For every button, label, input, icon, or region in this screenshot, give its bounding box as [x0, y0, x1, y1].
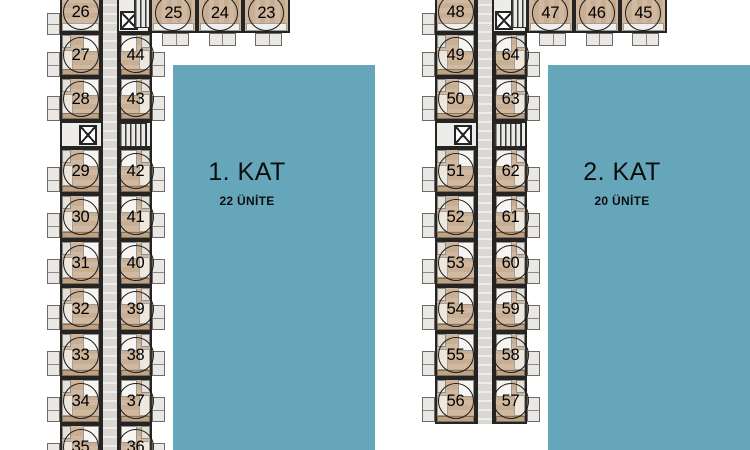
floor-plan-canvas: 1. KAT 22 ÜNİTE 2. KAT 20 ÜNİTE 26252423… — [0, 0, 750, 450]
unit-number-badge: 59 — [493, 291, 529, 327]
unit-number-badge: 58 — [493, 337, 529, 373]
balcony — [422, 167, 435, 192]
unit-number-badge: 51 — [438, 153, 474, 189]
unit-number-badge: 63 — [493, 81, 529, 117]
stairs-icon — [494, 123, 522, 147]
balcony — [422, 213, 435, 238]
balcony — [586, 33, 613, 46]
building-block-floor-2: 4847464549645063516252615360545955585657 — [0, 0, 750, 450]
corridor — [476, 0, 494, 424]
balcony — [527, 167, 540, 192]
balcony — [422, 397, 435, 422]
balcony — [539, 33, 566, 46]
balcony — [422, 13, 435, 35]
unit-number-badge: 64 — [493, 37, 529, 73]
balcony — [527, 305, 540, 330]
balcony — [527, 52, 540, 77]
stairs-icon — [511, 0, 527, 28]
balcony — [527, 96, 540, 121]
unit-number-badge: 62 — [493, 153, 529, 189]
unit-number-badge: 54 — [438, 291, 474, 327]
balcony — [632, 33, 659, 46]
balcony — [422, 305, 435, 330]
balcony — [527, 213, 540, 238]
balcony — [422, 351, 435, 376]
unit-number-badge: 57 — [493, 383, 529, 419]
unit-number-badge: 52 — [438, 199, 474, 235]
unit-number-badge: 49 — [438, 37, 474, 73]
unit-number-badge: 56 — [438, 383, 474, 419]
balcony — [422, 259, 435, 284]
balcony — [422, 52, 435, 77]
unit-number-badge: 61 — [493, 199, 529, 235]
balcony — [527, 397, 540, 422]
unit-number-badge: 55 — [438, 337, 474, 373]
unit-number-badge: 60 — [493, 245, 529, 281]
balcony — [527, 259, 540, 284]
balcony — [422, 96, 435, 121]
elevator-icon — [454, 125, 472, 145]
balcony — [527, 351, 540, 376]
unit-number-badge: 53 — [438, 245, 474, 281]
unit-number-badge: 50 — [438, 81, 474, 117]
